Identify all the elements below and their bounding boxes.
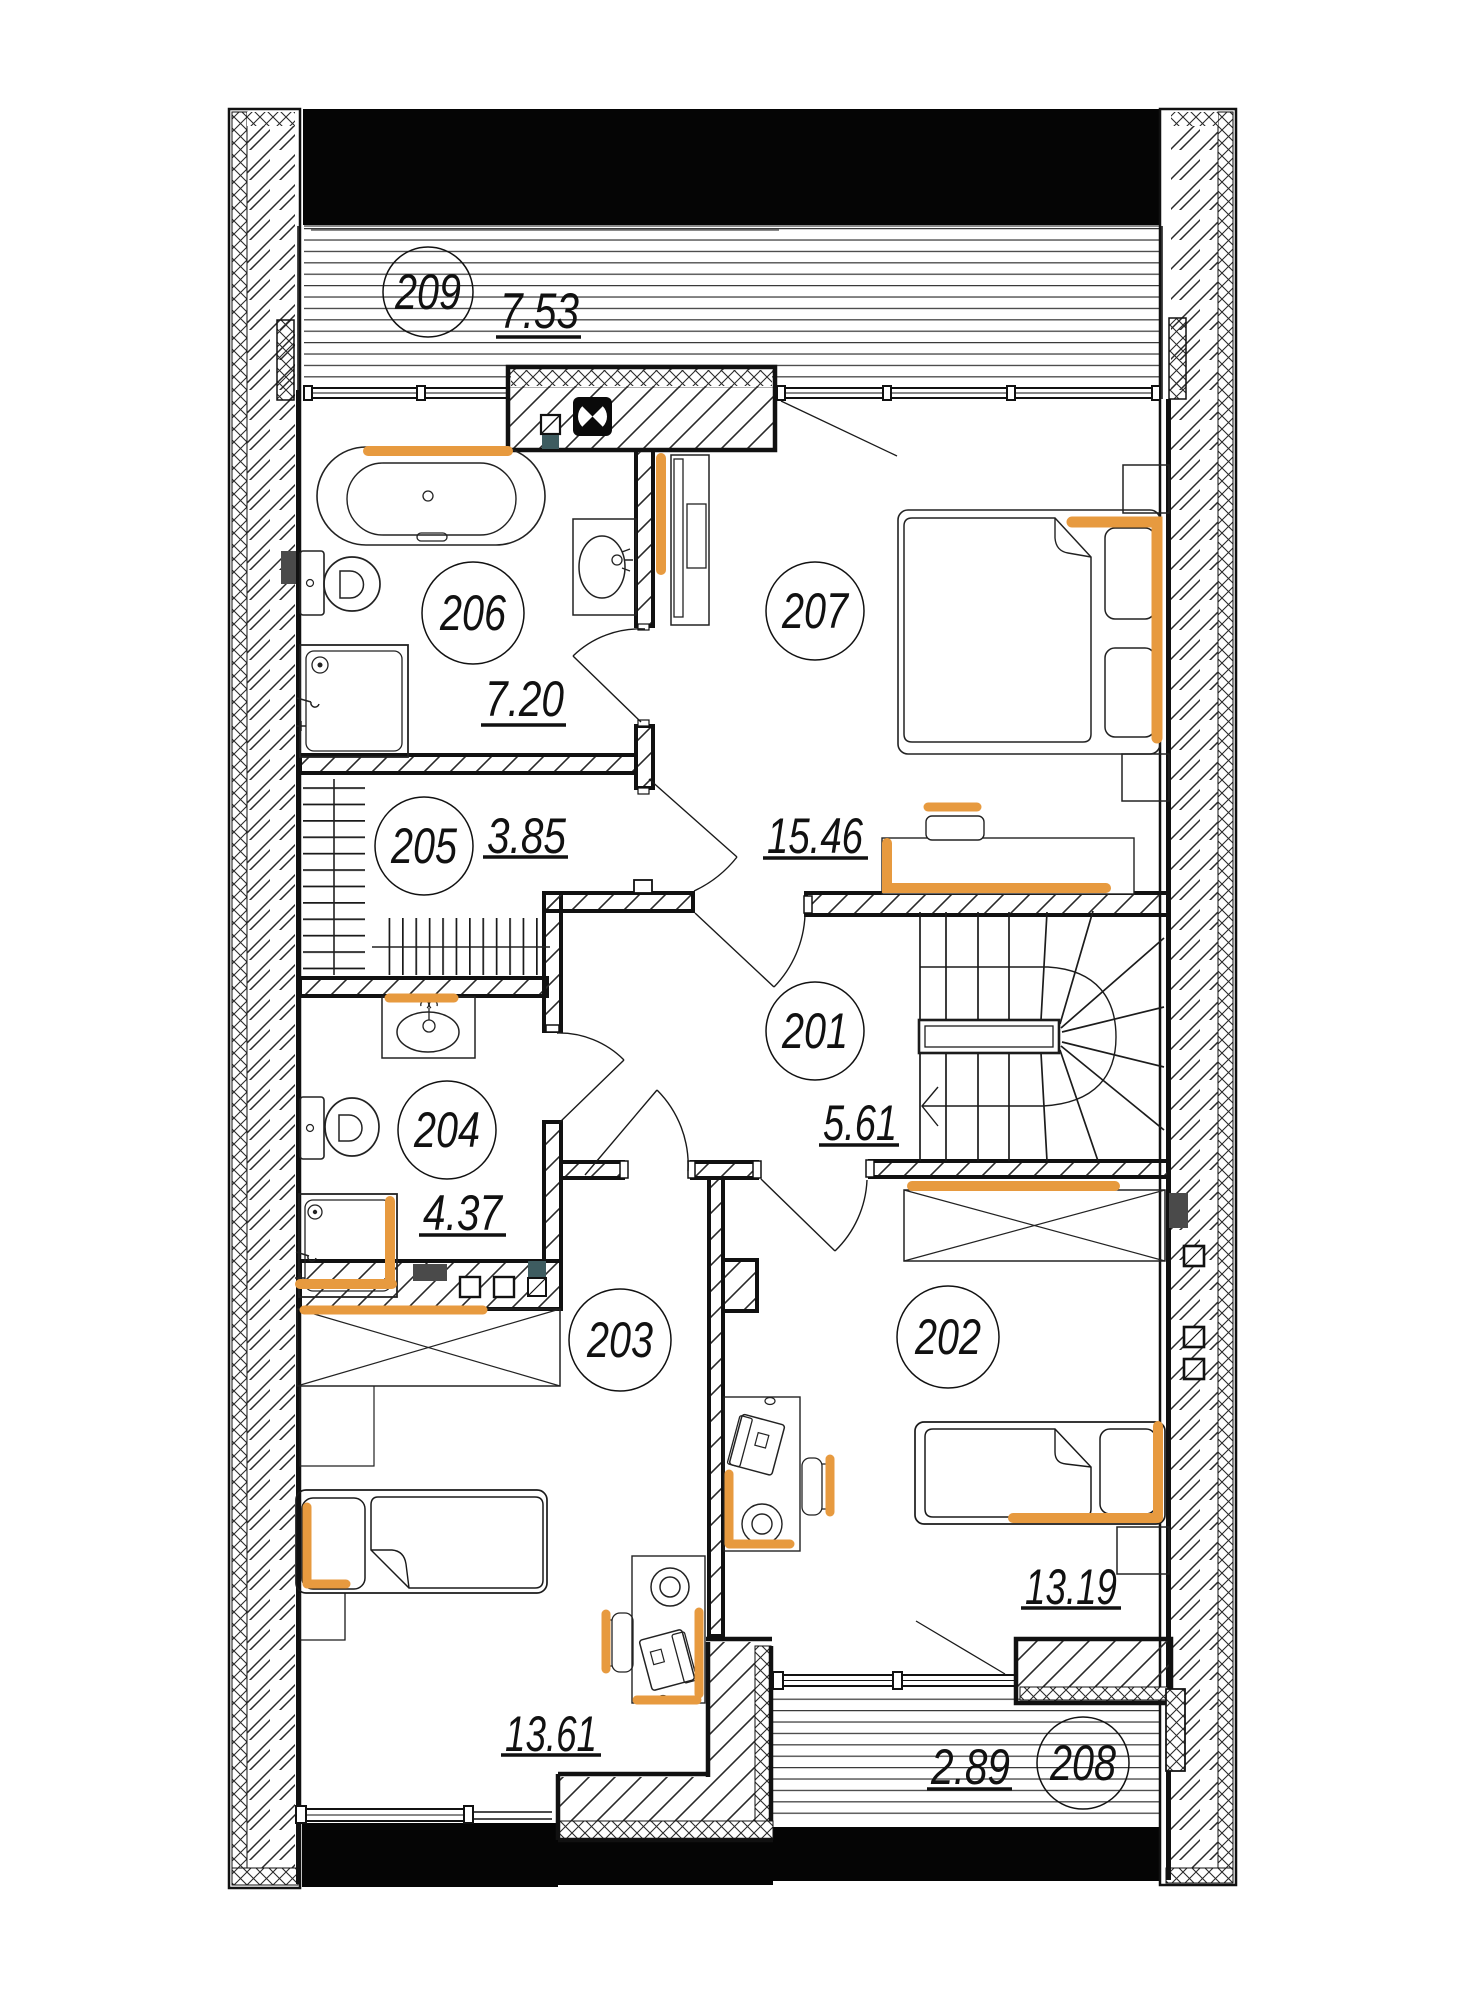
svg-text:203: 203: [586, 1312, 653, 1368]
svg-text:209: 209: [394, 264, 461, 320]
svg-text:15.46: 15.46: [767, 808, 863, 864]
svg-text:207: 207: [781, 583, 850, 639]
svg-text:7.20: 7.20: [485, 671, 564, 727]
svg-text:7.53: 7.53: [500, 283, 579, 339]
svg-text:4.37: 4.37: [423, 1185, 504, 1241]
svg-text:201: 201: [781, 1003, 848, 1059]
svg-text:205: 205: [390, 818, 457, 874]
svg-text:2.89: 2.89: [930, 1739, 1010, 1795]
svg-text:208: 208: [1049, 1735, 1116, 1791]
svg-text:204: 204: [413, 1102, 480, 1158]
svg-text:206: 206: [439, 585, 506, 641]
svg-text:202: 202: [914, 1309, 981, 1365]
svg-text:5.61: 5.61: [823, 1095, 897, 1151]
